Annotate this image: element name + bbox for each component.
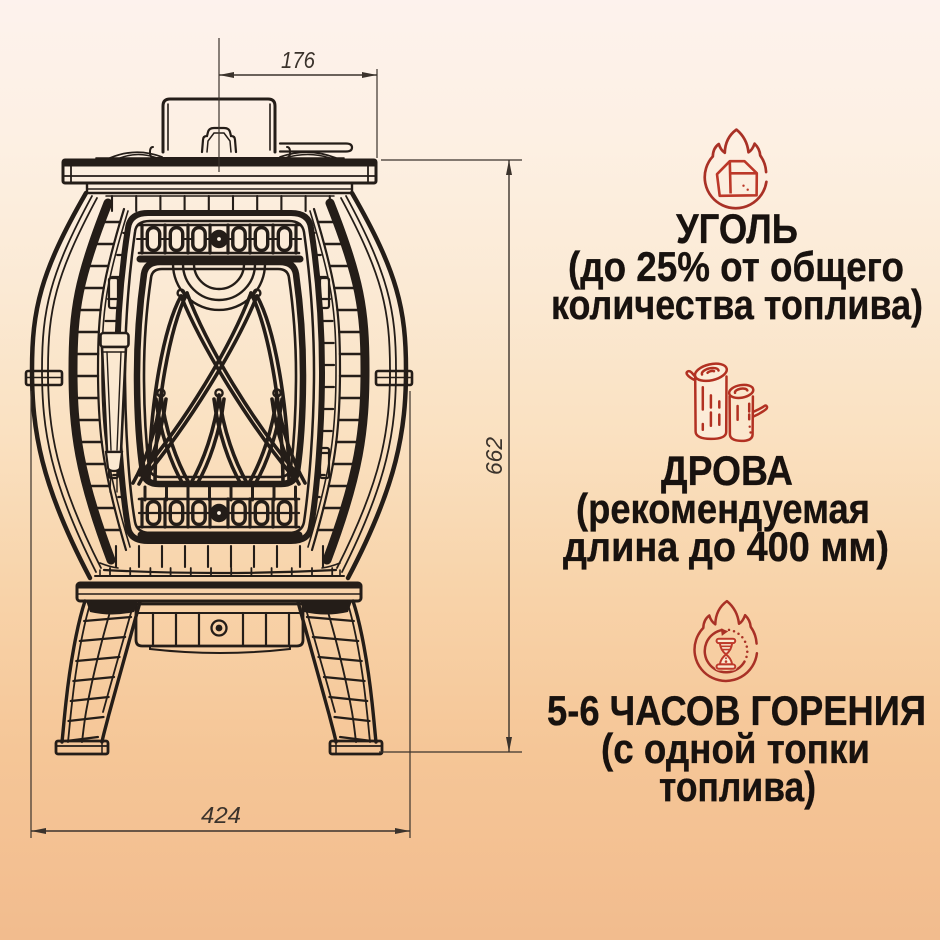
svg-text:длина до 400 мм): длина до 400 мм) [563,523,889,570]
svg-text:топлива): топлива) [659,763,816,810]
svg-text:количества топлива): количества топлива) [551,281,923,328]
svg-text:176: 176 [281,47,315,73]
svg-text:662: 662 [481,437,507,475]
svg-text:424: 424 [201,802,241,828]
